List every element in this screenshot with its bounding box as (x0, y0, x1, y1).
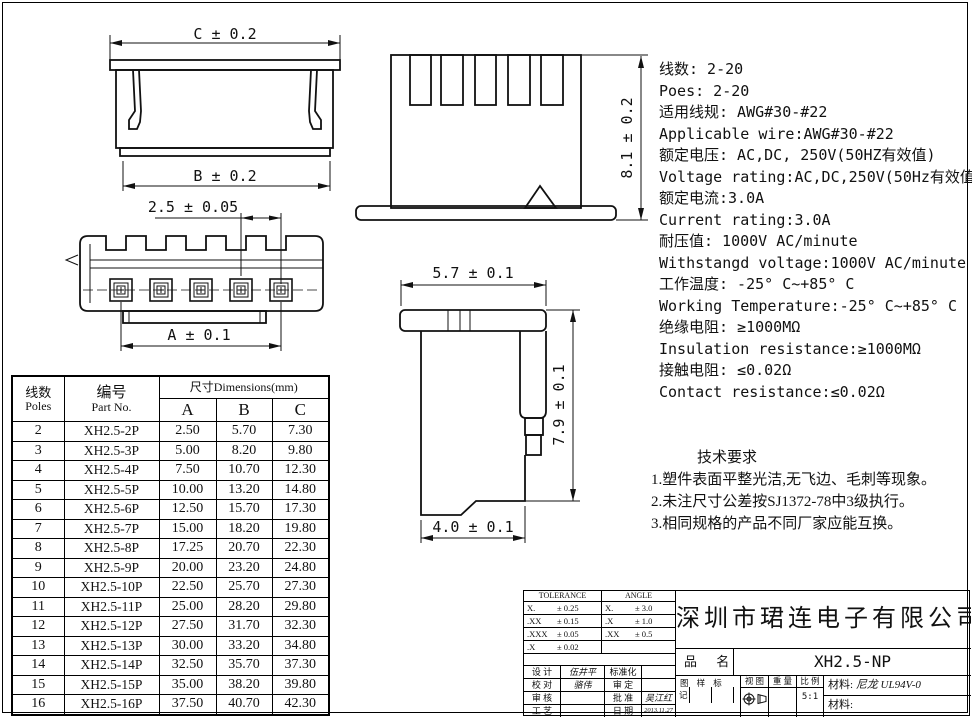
cell-part: XH2.5-13P (64, 636, 159, 656)
cell-c: 24.80 (272, 558, 329, 578)
cell-poles: 4 (12, 461, 64, 481)
sig-value-standardize (642, 666, 676, 679)
title-block: TOLERANCE ANGLE X. ± 0.25 .XX ± 0.15 .XX… (523, 590, 970, 716)
cell-b: 8.20 (216, 441, 272, 461)
table-row: 16XH2.5-16P37.5040.7042.30 (12, 695, 329, 715)
sig-value-craft (561, 705, 605, 717)
cell-poles: 8 (12, 539, 64, 559)
tolerance-title: TOLERANCE (524, 591, 602, 602)
cell-poles: 2 (12, 422, 64, 442)
tech-requirements-title: 技术要求 (651, 447, 971, 469)
angle-row: X. ± 3.0 (602, 602, 676, 615)
wedge-marker (66, 255, 78, 265)
dim-label: A ± 0.1 (167, 326, 230, 344)
cell-a: 2.50 (159, 422, 216, 442)
sig-value-review (642, 679, 676, 692)
spec-line: 接触电阻: ≤0.02Ω (659, 360, 971, 382)
angle-label: X. (602, 602, 635, 614)
spec-line: Withstangd voltage:1000V AC/minute (659, 253, 971, 275)
tolerance-row: .XXX ± 0.05 (524, 628, 602, 641)
cell-b: 38.20 (216, 675, 272, 695)
angle-label: .X (602, 615, 635, 627)
spec-line: Voltage rating:AC,DC,250V(50Hz有效值) (659, 167, 971, 189)
cell-a: 30.00 (159, 636, 216, 656)
pin-contacts (110, 279, 292, 301)
stamp-label: 图 样 标 (676, 676, 740, 689)
spec-line: 绝缘电阻: ≥1000MΩ (659, 317, 971, 339)
sig-value-check: 骆伟 (561, 679, 605, 692)
dim-label: B ± 0.2 (193, 167, 256, 185)
header-poles-en: Poles (13, 400, 64, 413)
profile-view-drawing: 5.7 ± 0.1 7.9 ± 0.1 4.0 ± 0.1 (383, 258, 588, 548)
table-row: 14XH2.5-14P32.5035.7037.30 (12, 656, 329, 676)
cell-part: XH2.5-12P (64, 617, 159, 637)
view-cell: 视 图 (741, 676, 769, 717)
scale-value: 5:1 (797, 692, 823, 702)
tol-value: ± 0.05 (557, 628, 579, 640)
table-row: 4XH2.5-4P7.5010.7012.30 (12, 461, 329, 481)
table-row: 12XH2.5-12P27.5031.7032.30 (12, 617, 329, 637)
cell-a: 35.00 (159, 675, 216, 695)
cell-c: 42.30 (272, 695, 329, 715)
tol-value: ± 0.15 (557, 615, 579, 627)
stamp-label2: 记 (679, 689, 688, 701)
cell-poles: 10 (12, 578, 64, 598)
cell-poles: 15 (12, 675, 64, 695)
dim-table-body: 2XH2.5-2P2.505.707.303XH2.5-3P5.008.209.… (12, 422, 329, 715)
cell-part: XH2.5-5P (64, 480, 159, 500)
dimension-table: 线数 Poles 编号 Part No. 尺寸Dimensions(mm) A … (11, 375, 330, 716)
header-col-a: A (159, 399, 216, 422)
cell-b: 5.70 (216, 422, 272, 442)
tech-requirements: 技术要求 1.塑件表面平整光洁,无飞边、毛刺等现象。2.未注尺寸公差按SJ137… (651, 447, 971, 535)
stamp-divider (689, 687, 690, 703)
table-row: 8XH2.5-8P17.2520.7022.30 (12, 539, 329, 559)
spec-line: 线数: 2-20 (659, 59, 971, 81)
cell-part: XH2.5-6P (64, 500, 159, 520)
tol-label: .XXX (524, 628, 557, 640)
cell-c: 9.80 (272, 441, 329, 461)
cell-a: 10.00 (159, 480, 216, 500)
cell-a: 17.25 (159, 539, 216, 559)
cell-a: 32.50 (159, 656, 216, 676)
cell-c: 32.30 (272, 617, 329, 637)
tech-requirement-item: 2.未注尺寸公差按SJ1372-78中3级执行。 (651, 491, 971, 513)
cell-a: 7.50 (159, 461, 216, 481)
tech-requirement-item: 3.相同规格的产品不同厂家应能互换。 (651, 513, 971, 535)
drawing-sheet: C ± 0.2 B ± 0.2 (2, 2, 968, 713)
tolerance-row: X. ± 0.25 (524, 602, 602, 615)
table-row: 5XH2.5-5P10.0013.2014.80 (12, 480, 329, 500)
cell-a: 37.50 (159, 695, 216, 715)
cell-part: XH2.5-10P (64, 578, 159, 598)
spec-line: 耐压值: 1000V AC/minute (659, 231, 971, 253)
angle-value: ± 1.0 (635, 615, 652, 627)
side-view-dimensions (581, 55, 648, 220)
cell-c: 29.80 (272, 597, 329, 617)
cell-part: XH2.5-2P (64, 422, 159, 442)
projection-symbol-icon (742, 691, 768, 707)
cell-c: 22.30 (272, 539, 329, 559)
view-label: 视 图 (741, 676, 768, 688)
stamp-divider (733, 687, 734, 703)
dim-label: 4.0 ± 0.1 (432, 518, 513, 536)
tol-label: .XX (524, 615, 557, 627)
cell-part: XH2.5-7P (64, 519, 159, 539)
cell-poles: 9 (12, 558, 64, 578)
front-view-drawing: C ± 0.2 B ± 0.2 (63, 13, 363, 203)
stamp-area: 图 样 标 记 (676, 676, 741, 717)
tolerance-row: .X ± 0.02 (524, 641, 602, 654)
side-view-drawing: 8.1 ± 0.2 (348, 43, 658, 228)
cell-poles: 13 (12, 636, 64, 656)
cell-c: 39.80 (272, 675, 329, 695)
material-row-1: 材料: 尼龙 UL94V-0 (824, 676, 971, 696)
cell-c: 7.30 (272, 422, 329, 442)
tol-value: ± 0.25 (557, 602, 579, 614)
cell-b: 15.70 (216, 500, 272, 520)
cell-b: 10.70 (216, 461, 272, 481)
header-part-zh: 编号 (65, 385, 159, 401)
cell-part: XH2.5-15P (64, 675, 159, 695)
cell-b: 33.20 (216, 636, 272, 656)
company-name: 深圳市珺连电子有限公司 (676, 591, 971, 649)
cell-b: 35.70 (216, 656, 272, 676)
sig-label-approve: 批 准 (605, 692, 642, 705)
angle-label: .XX (602, 628, 635, 640)
header-col-b: B (216, 399, 272, 422)
sig-label-craft: 工 艺 (524, 705, 561, 717)
angle-row (602, 641, 676, 654)
angle-title: ANGLE (602, 591, 676, 602)
spec-line: 额定电压: AC,DC, 250V(50HZ有效值) (659, 145, 971, 167)
tech-requirement-item: 1.塑件表面平整光洁,无飞边、毛刺等现象。 (651, 469, 971, 491)
blank-strip (524, 654, 676, 666)
spec-line: Applicable wire:AWG#30-#22 (659, 124, 971, 146)
header-poles: 线数 Poles (12, 376, 64, 422)
angle-value: ± 0.5 (635, 628, 652, 640)
cell-c: 17.30 (272, 500, 329, 520)
cell-poles: 12 (12, 617, 64, 637)
header-col-c: C (272, 399, 329, 422)
spec-line: 工作温度: -25° C~+85° C (659, 274, 971, 296)
cell-part: XH2.5-8P (64, 539, 159, 559)
dim-label: C ± 0.2 (193, 25, 256, 43)
table-row: 3XH2.5-3P5.008.209.80 (12, 441, 329, 461)
table-row: 10XH2.5-10P22.5025.7027.30 (12, 578, 329, 598)
cell-part: XH2.5-16P (64, 695, 159, 715)
dim-label: 8.1 ± 0.2 (618, 97, 636, 178)
cell-a: 22.50 (159, 578, 216, 598)
cell-c: 19.80 (272, 519, 329, 539)
header-poles-zh: 线数 (13, 385, 64, 400)
cell-a: 12.50 (159, 500, 216, 520)
header-dimensions: 尺寸Dimensions(mm) (159, 376, 329, 399)
front-view-outline (110, 60, 340, 156)
cell-poles: 6 (12, 500, 64, 520)
cell-part: XH2.5-11P (64, 597, 159, 617)
cell-c: 27.30 (272, 578, 329, 598)
sig-label-review: 审 定 (605, 679, 642, 692)
spec-line: Insulation resistance:≥1000MΩ (659, 339, 971, 361)
spec-line: Current rating:3.0A (659, 210, 971, 232)
material-value: 尼龙 UL94V-0 (856, 679, 921, 691)
cell-a: 27.50 (159, 617, 216, 637)
angle-row: .XX ± 0.5 (602, 628, 676, 641)
sig-value-design: 伍井平 (561, 666, 605, 679)
stamp-divider (711, 687, 712, 703)
side-view-outline (356, 55, 616, 220)
cell-part: XH2.5-4P (64, 461, 159, 481)
cell-b: 31.70 (216, 617, 272, 637)
dim-label: 7.9 ± 0.1 (550, 364, 568, 445)
cell-b: 40.70 (216, 695, 272, 715)
sig-label-date: 日 期 (605, 705, 642, 717)
cell-poles: 16 (12, 695, 64, 715)
cell-part: XH2.5-9P (64, 558, 159, 578)
sig-label-design: 设 计 (524, 666, 561, 679)
profile-outline (400, 310, 546, 515)
sig-label-standardize: 标准化 (605, 666, 642, 679)
table-row: 6XH2.5-6P12.5015.7017.30 (12, 500, 329, 520)
scale-label: 比 例 (797, 676, 823, 688)
cell-poles: 11 (12, 597, 64, 617)
spec-line: 额定电流:3.0A (659, 188, 971, 210)
cell-b: 23.20 (216, 558, 272, 578)
material-label: 材料: (828, 699, 853, 711)
sig-value-approve: 吴江红 (642, 692, 676, 705)
tolerance-row: .XX ± 0.15 (524, 615, 602, 628)
scale-cell: 比 例 5:1 (797, 676, 824, 717)
cell-a: 5.00 (159, 441, 216, 461)
table-row: 7XH2.5-7P15.0018.2019.80 (12, 519, 329, 539)
cell-c: 12.30 (272, 461, 329, 481)
cell-poles: 7 (12, 519, 64, 539)
triangle-marker (525, 186, 556, 208)
spec-line: Working Temperature:-25° C~+85° C (659, 296, 971, 318)
cell-a: 20.00 (159, 558, 216, 578)
cell-part: XH2.5-3P (64, 441, 159, 461)
material-label: 材料: (828, 679, 853, 691)
tech-items: 1.塑件表面平整光洁,无飞边、毛刺等现象。2.未注尺寸公差按SJ1372-78中… (651, 469, 971, 535)
cell-b: 20.70 (216, 539, 272, 559)
cell-b: 18.20 (216, 519, 272, 539)
table-row: 15XH2.5-15P35.0038.2039.80 (12, 675, 329, 695)
angle-value: ± 3.0 (635, 602, 652, 614)
cell-poles: 3 (12, 441, 64, 461)
profile-details (448, 310, 470, 331)
dim-label: 2.5 ± 0.05 (148, 198, 238, 216)
tol-label: X. (524, 602, 557, 614)
cell-c: 37.30 (272, 656, 329, 676)
spec-line: Contact resistance:≤0.02Ω (659, 382, 971, 404)
spec-line: 适用线规: AWG#30-#22 (659, 102, 971, 124)
header-part-no: 编号 Part No. (64, 376, 159, 422)
cell-part: XH2.5-14P (64, 656, 159, 676)
sig-value-date: 2013.11.27 (642, 705, 676, 717)
weight-cell: 重 量 (769, 676, 797, 717)
dim-label: 5.7 ± 0.1 (432, 264, 513, 282)
cell-c: 14.80 (272, 480, 329, 500)
spec-list: 线数: 2-20Poes: 2-20适用线规: AWG#30-#22Applic… (659, 59, 971, 403)
cell-a: 25.00 (159, 597, 216, 617)
tol-label: .X (524, 641, 557, 653)
tol-value: ± 0.02 (557, 641, 579, 653)
product-name-value: XH2.5-NP (734, 649, 971, 676)
sig-label-audit: 审 核 (524, 692, 561, 705)
cell-b: 28.20 (216, 597, 272, 617)
table-row: 9XH2.5-9P20.0023.2024.80 (12, 558, 329, 578)
product-name-label: 品 名 (676, 649, 734, 676)
material-row-2: 材料: (824, 696, 971, 717)
cell-a: 15.00 (159, 519, 216, 539)
table-row: 2XH2.5-2P2.505.707.30 (12, 422, 329, 442)
angle-row: .X ± 1.0 (602, 615, 676, 628)
sig-value-audit (561, 692, 605, 705)
cell-b: 13.20 (216, 480, 272, 500)
weight-label: 重 量 (769, 676, 796, 688)
cell-c: 34.80 (272, 636, 329, 656)
spec-line: Poes: 2-20 (659, 81, 971, 103)
table-row: 13XH2.5-13P30.0033.2034.80 (12, 636, 329, 656)
table-row: 11XH2.5-11P25.0028.2029.80 (12, 597, 329, 617)
pin-view-drawing: 2.5 ± 0.05 A ± 0.1 (33, 198, 363, 363)
cell-poles: 14 (12, 656, 64, 676)
cell-b: 25.70 (216, 578, 272, 598)
sig-label-check: 校 对 (524, 679, 561, 692)
cell-poles: 5 (12, 480, 64, 500)
header-part-en: Part No. (65, 401, 159, 414)
